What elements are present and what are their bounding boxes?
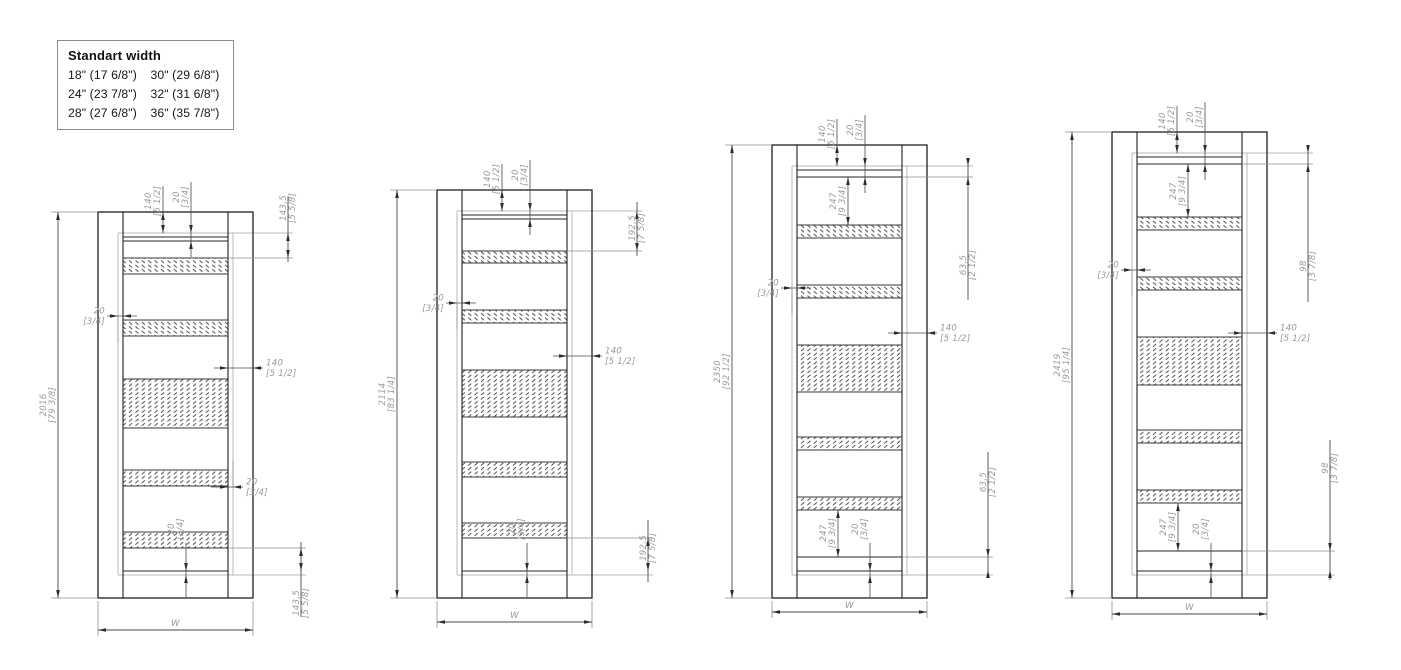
door-drawing-3: 2350[92 1/2]140[5 1/2]20[3/4]247[9 3/4]2… — [713, 115, 998, 618]
svg-text:[2 1/2]: [2 1/2] — [968, 250, 978, 281]
svg-text:W: W — [1185, 603, 1194, 613]
svg-text:[3/4]: [3/4] — [1195, 106, 1205, 128]
door-drawing-4: 2419[95 1/4]140[5 1/2]20[3/4]247[9 3/4]2… — [1053, 102, 1340, 620]
svg-text:[3 7/8]: [3 7/8] — [1308, 251, 1318, 282]
svg-text:W: W — [510, 611, 519, 621]
svg-text:[7 5/8]: [7 5/8] — [637, 213, 647, 244]
svg-text:[9 3/4]: [9 3/4] — [1178, 176, 1188, 207]
svg-text:[5 1/2]: [5 1/2] — [827, 119, 837, 150]
svg-text:140: 140 — [940, 324, 957, 334]
svg-text:[5 1/2]: [5 1/2] — [1280, 334, 1311, 344]
svg-text:20: 20 — [1108, 261, 1120, 271]
svg-text:[7 5/8]: [7 5/8] — [648, 533, 658, 564]
svg-text:[3/4]: [3/4] — [422, 304, 444, 314]
svg-text:W: W — [845, 601, 854, 611]
svg-text:[5 1/2]: [5 1/2] — [940, 334, 971, 344]
svg-text:[3/4]: [3/4] — [83, 317, 105, 327]
svg-text:[9 3/4]: [9 3/4] — [828, 518, 838, 549]
svg-text:[9 3/4]: [9 3/4] — [838, 186, 848, 217]
technical-drawing-canvas: 2016[79 3/8]140[5 1/2]20[3/4]143,5[5 5/8… — [0, 0, 1401, 670]
svg-text:[3 7/8]: [3 7/8] — [1330, 453, 1340, 484]
svg-text:[5 5/8]: [5 5/8] — [301, 588, 311, 619]
svg-text:[3/4]: [3/4] — [181, 186, 191, 208]
svg-text:[79 3/8]: [79 3/8] — [48, 387, 58, 423]
svg-text:[92 1/2]: [92 1/2] — [722, 353, 732, 389]
svg-text:[5 1/2]: [5 1/2] — [266, 369, 297, 379]
svg-text:[5 1/2]: [5 1/2] — [1167, 106, 1177, 137]
svg-text:20: 20 — [94, 307, 106, 317]
svg-text:[95 1/4]: [95 1/4] — [1062, 347, 1072, 383]
svg-text:[3/4]: [3/4] — [757, 289, 779, 299]
door-drawing-1: 2016[79 3/8]140[5 1/2]20[3/4]143,5[5 5/8… — [39, 182, 311, 636]
svg-text:[3/4]: [3/4] — [860, 518, 870, 540]
svg-text:140: 140 — [1280, 324, 1297, 334]
svg-text:140: 140 — [605, 347, 622, 357]
svg-text:[3/4]: [3/4] — [246, 488, 268, 498]
svg-text:20: 20 — [768, 279, 780, 289]
svg-text:[5 1/2]: [5 1/2] — [153, 186, 163, 217]
svg-text:20: 20 — [433, 294, 445, 304]
svg-text:[3/4]: [3/4] — [1201, 518, 1211, 540]
svg-text:140: 140 — [266, 359, 283, 369]
svg-text:[3/4]: [3/4] — [520, 164, 530, 186]
svg-text:[3/4]: [3/4] — [176, 518, 186, 540]
svg-text:20: 20 — [246, 478, 258, 488]
svg-text:[3/4]: [3/4] — [855, 119, 865, 141]
svg-text:[83 1/4]: [83 1/4] — [387, 376, 397, 412]
svg-text:[5 1/2]: [5 1/2] — [492, 164, 502, 195]
svg-text:[3/4]: [3/4] — [517, 518, 527, 540]
svg-text:W: W — [171, 619, 180, 629]
svg-text:[2 1/2]: [2 1/2] — [988, 467, 998, 498]
svg-text:[3/4]: [3/4] — [1097, 271, 1119, 281]
door-drawing-2: 2114[83 1/4]140[5 1/2]20[3/4]192,5[7 5/8… — [378, 160, 658, 628]
svg-text:[9 3/4]: [9 3/4] — [1168, 512, 1178, 543]
svg-text:[5 1/2]: [5 1/2] — [605, 357, 636, 367]
svg-text:[5 5/8]: [5 5/8] — [288, 193, 298, 224]
